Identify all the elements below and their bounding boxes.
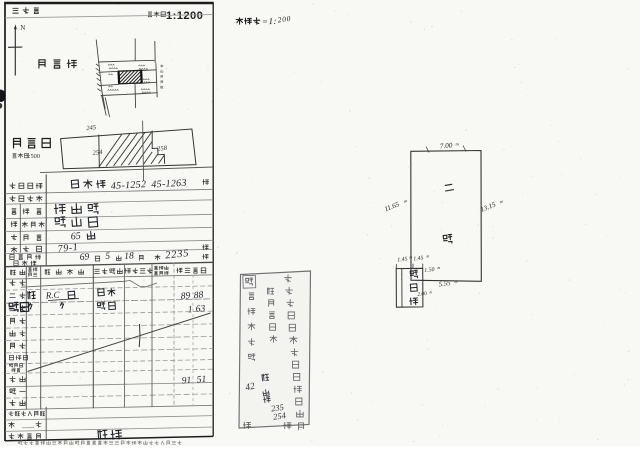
svg-text:51: 51 xyxy=(196,375,206,386)
svg-text:65: 65 xyxy=(70,231,81,243)
svg-text:m: m xyxy=(427,255,430,259)
svg-text:89: 89 xyxy=(180,291,191,302)
svg-text:91: 91 xyxy=(181,376,191,387)
svg-text:N: N xyxy=(20,24,25,32)
svg-text:45-1252: 45-1252 xyxy=(111,179,147,192)
svg-text:m: m xyxy=(430,291,433,295)
svg-text:200: 200 xyxy=(277,14,292,25)
svg-text:63: 63 xyxy=(195,304,206,315)
svg-text:88: 88 xyxy=(193,290,204,301)
svg-text:1.45: 1.45 xyxy=(413,254,424,262)
svg-text:69: 69 xyxy=(79,252,90,263)
svg-text:=1:: =1: xyxy=(262,16,277,27)
svg-text:7.00: 7.00 xyxy=(439,141,453,150)
svg-text:79-1: 79-1 xyxy=(57,242,79,255)
svg-text:254: 254 xyxy=(92,149,103,157)
svg-text:m: m xyxy=(455,279,458,284)
svg-text:m: m xyxy=(438,266,441,270)
svg-text:R.C: R.C xyxy=(44,289,60,300)
svg-text:45-1263: 45-1263 xyxy=(151,178,187,191)
svg-text:1: 1 xyxy=(187,305,193,315)
svg-text:258: 258 xyxy=(157,145,168,153)
svg-text:245: 245 xyxy=(86,124,97,132)
svg-text:1.45: 1.45 xyxy=(397,255,408,263)
svg-text:18: 18 xyxy=(124,251,135,262)
svg-text:254: 254 xyxy=(272,410,287,422)
svg-text:1.50: 1.50 xyxy=(424,267,435,274)
svg-text:1:1200: 1:1200 xyxy=(166,10,203,22)
svg-text:2.00: 2.00 xyxy=(417,291,427,298)
svg-text:1:500: 1:500 xyxy=(26,153,41,160)
svg-text:m: m xyxy=(410,256,413,260)
